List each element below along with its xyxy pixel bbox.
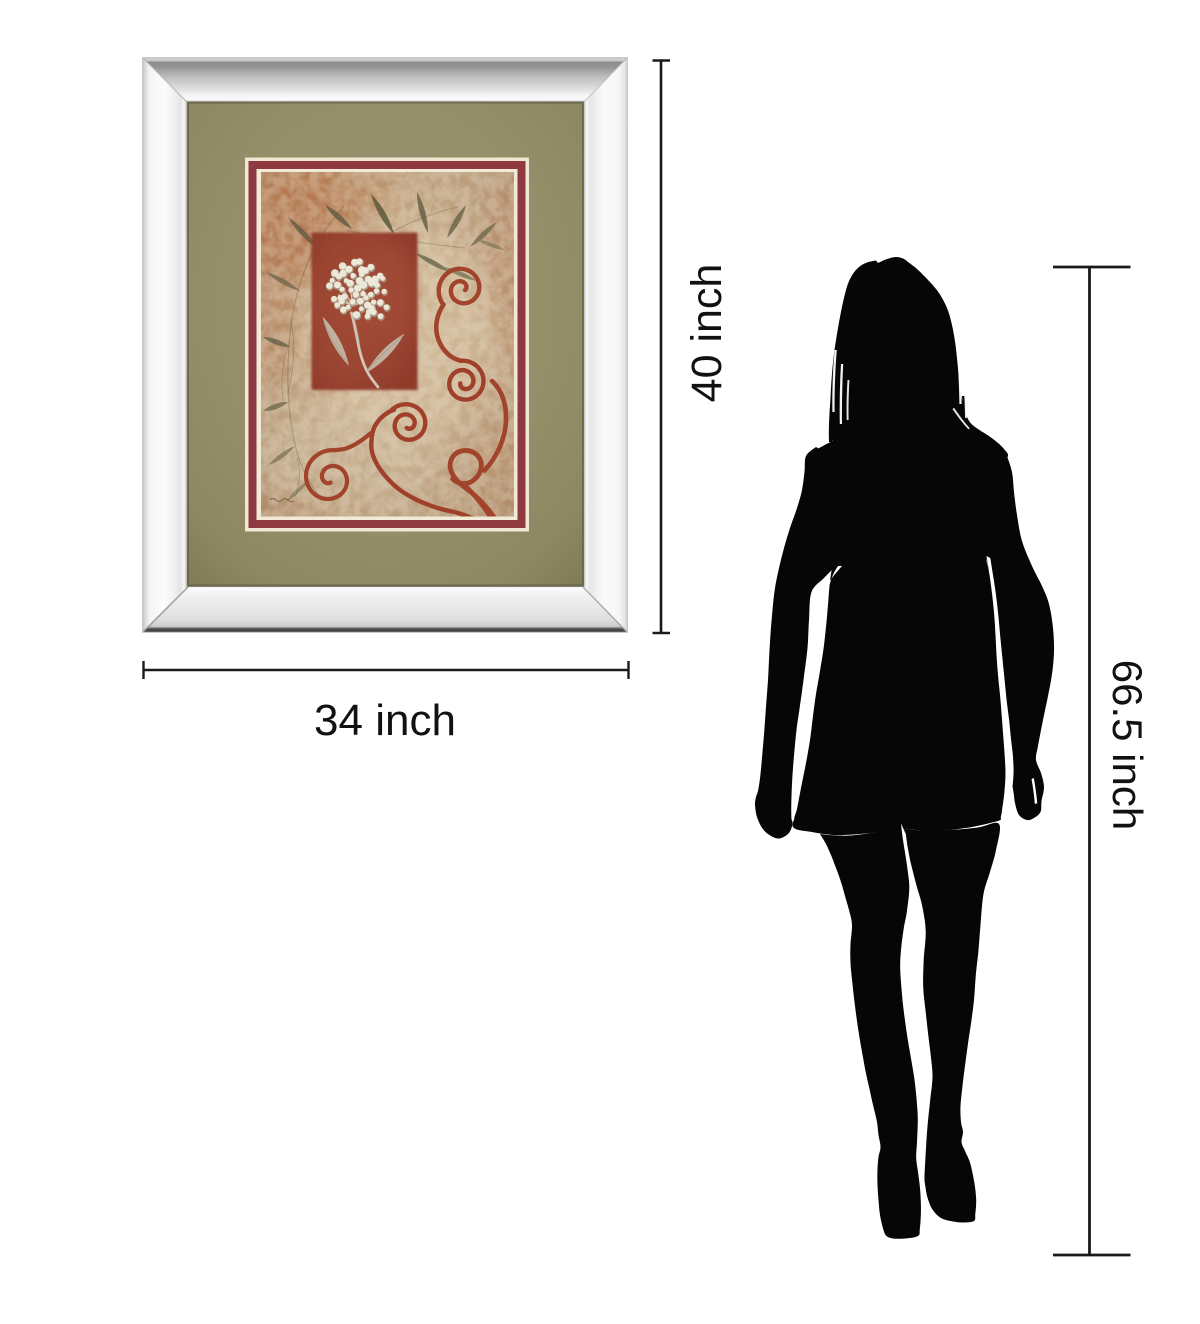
- svg-text:34 inch: 34 inch: [314, 696, 456, 745]
- svg-text:40 inch: 40 inch: [683, 264, 731, 403]
- svg-text:66.5 inch: 66.5 inch: [1104, 660, 1151, 830]
